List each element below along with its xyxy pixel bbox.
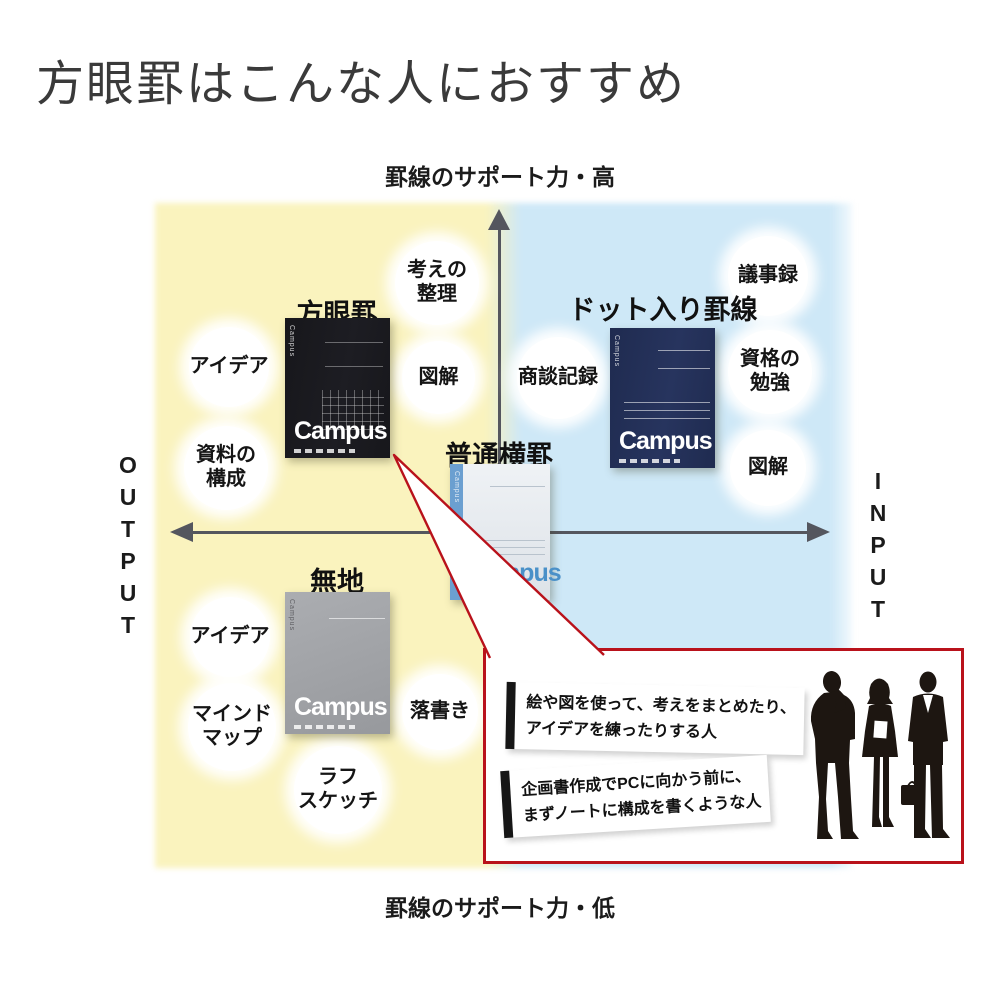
bubble-text: 整理 [417, 283, 457, 307]
spine-text: Campus [613, 335, 620, 367]
up-arrowhead-icon [488, 209, 510, 230]
callout-box: 絵や図を使って、考えをまとめたり、 アイデアを練ったりする人 企画書作成でPCに… [483, 648, 964, 864]
campus-logo: Campus [619, 427, 712, 456]
bubble-text: 資料の [196, 444, 256, 468]
use-case-bubble: 商談記録 [517, 337, 599, 419]
cover-caption [294, 725, 355, 729]
campus-logo: Campus [468, 559, 561, 588]
bubble-text: マインド [192, 703, 272, 727]
axis-label-output: OUTPUT [114, 452, 141, 644]
bubble-text: 議事録 [738, 264, 798, 288]
cover-caption [619, 459, 680, 463]
notebook-dot: Campus Campus [610, 328, 715, 468]
callout-panel: 企画書作成でPCに向かう前に、 まずノートに構成を書くような人 [500, 755, 770, 838]
bubble-text: マップ [202, 727, 262, 751]
business-people-silhouette-icon [804, 669, 956, 851]
bubble-text: 構成 [206, 468, 246, 492]
bubble-text: 図解 [748, 456, 788, 480]
page-title: 方眼罫はこんな人におすすめ [36, 44, 686, 114]
use-case-bubble: 資格の 勉強 [728, 330, 812, 414]
spine-text: Campus [288, 599, 295, 631]
use-case-bubble: アイデア [190, 597, 270, 677]
bubble-text: 図解 [419, 366, 459, 390]
bubble-text: 商談記録 [518, 366, 598, 390]
bubble-text: アイデア [190, 355, 269, 379]
use-case-bubble: 考えの 整理 [395, 241, 479, 325]
cover-caption [294, 449, 355, 453]
axis-label-support-low: 罫線のサポート力・低 [385, 889, 615, 923]
axis-label-input: INPUT [864, 468, 891, 628]
bubble-text: ラフ [318, 766, 358, 790]
infographic-canvas: 方眼罫はこんな人におすすめ 罫線のサポート力・高 罫線のサポート力・低 OUTP… [0, 0, 1000, 1000]
use-case-bubble: 図解 [402, 341, 475, 414]
use-case-bubble: 資料の 構成 [184, 426, 268, 510]
spine-text: Campus [288, 325, 295, 357]
use-case-bubble: アイデア [189, 327, 269, 407]
notebook-normal: Campus Campus [450, 464, 550, 600]
use-case-bubble: ラフ スケッチ [294, 746, 382, 834]
campus-logo: Campus [294, 693, 387, 722]
bubble-text: 落書き [410, 700, 470, 724]
bubble-text: スケッチ [298, 790, 378, 814]
notebook-dot-label: ドット入り罫線 [569, 288, 758, 327]
bubble-text: 勉強 [750, 372, 790, 396]
spine-text: Campus [453, 471, 460, 503]
use-case-bubble: マインド マップ [188, 683, 276, 771]
bubble-text: アイデア [191, 625, 270, 649]
use-case-bubble: 落書き [402, 674, 478, 750]
axis-label-support-high: 罫線のサポート力・高 [385, 158, 615, 192]
right-arrowhead-icon [807, 522, 830, 542]
bubble-text: 資格の [740, 348, 800, 372]
bubble-text: 考えの [407, 259, 467, 283]
notebook-plain: Campus Campus [285, 592, 390, 734]
use-case-bubble: 図解 [730, 430, 806, 506]
left-arrowhead-icon [170, 522, 193, 542]
notebook-grid: Campus Campus [285, 318, 390, 458]
campus-logo: Campus [294, 417, 387, 446]
callout-panel: 絵や図を使って、考えをまとめたり、 アイデアを練ったりする人 [505, 682, 804, 755]
